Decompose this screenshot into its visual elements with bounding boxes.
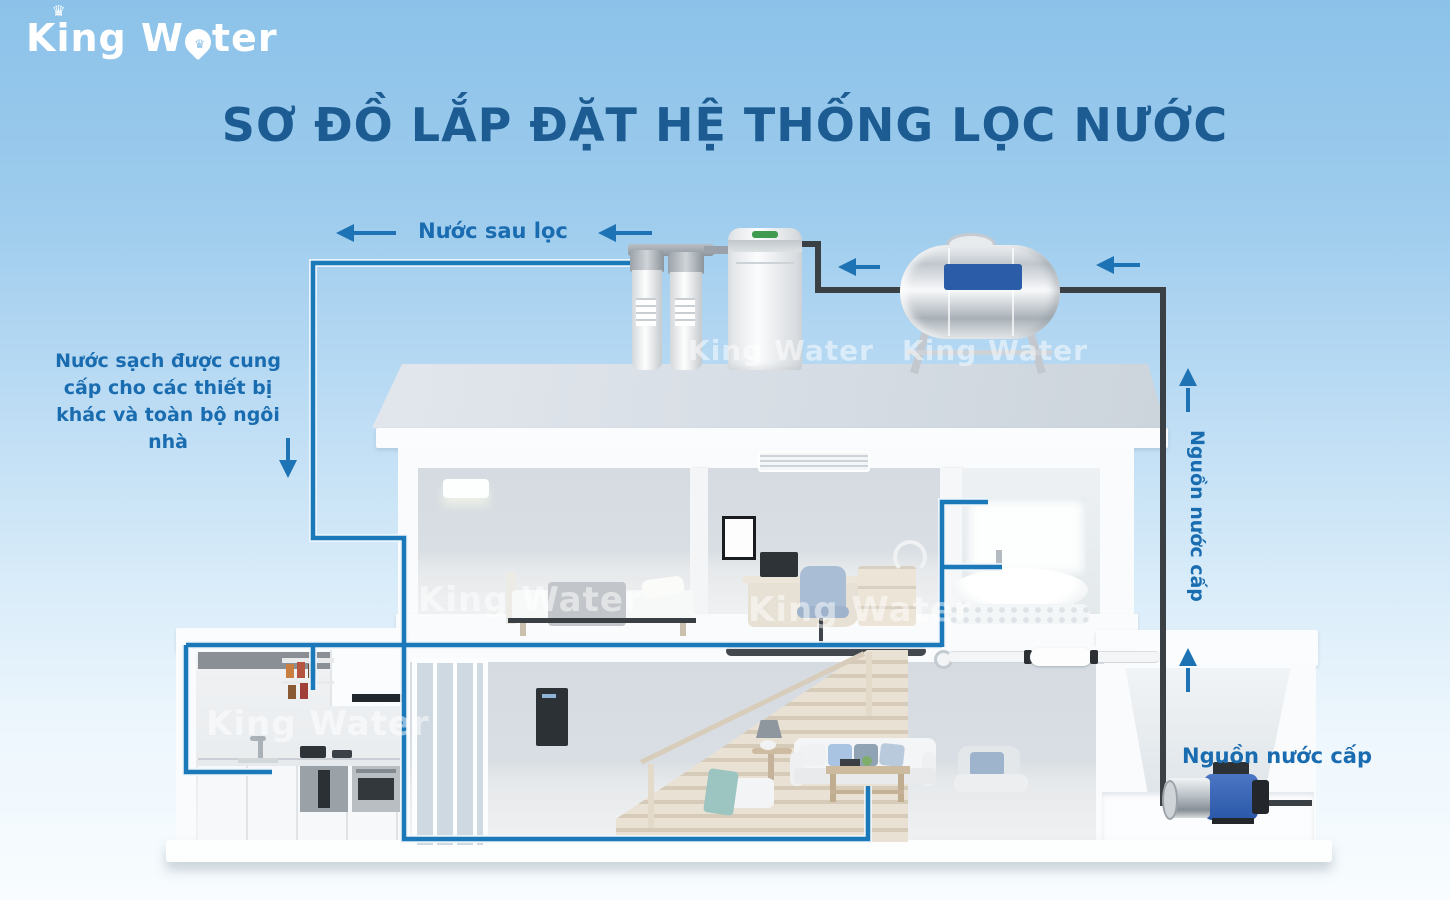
- page-title: SƠ ĐỒ LẮP ĐẶT HỆ THỐNG LỌC NƯỚC: [0, 98, 1450, 152]
- clean-water-pipe: [186, 263, 1002, 839]
- logo-text-left: King W: [26, 16, 184, 60]
- tank-seam: [1012, 248, 1014, 336]
- label-supply-pump: Nguồn nước cấp: [1182, 744, 1382, 768]
- infographic-canvas: ♛King W♛ter SƠ ĐỒ LẮP ĐẶT HỆ THỐNG LỌC N…: [0, 0, 1450, 900]
- prefilter-cap: [668, 252, 704, 274]
- supply-water-pipe: [790, 244, 1312, 803]
- prefilter-label: [636, 298, 656, 326]
- prefilter-label: [675, 298, 695, 326]
- label-clean-water-note: Nước sạch được cung cấp cho các thiết bị…: [36, 348, 300, 456]
- arrow-left-icon: [838, 258, 880, 276]
- arrow-up-icon: [1179, 368, 1197, 412]
- label-filtered-water: Nước sau lọc: [398, 219, 588, 243]
- arrow-left-icon: [598, 224, 652, 242]
- prefilter-cap: [630, 250, 664, 272]
- tank-seam: [948, 248, 950, 336]
- pump-front-ring: [1162, 780, 1178, 820]
- pump-body: [1204, 774, 1258, 820]
- tank-stand-bar: [906, 350, 1052, 355]
- arrow-left-icon: [336, 224, 396, 242]
- logo-text-right: ter: [212, 16, 278, 60]
- tank-label-panel: [944, 264, 1022, 290]
- arrow-left-icon: [1096, 256, 1140, 274]
- label-supply-vertical: Nguồn nước cấp: [1182, 430, 1208, 602]
- crown-icon: ♛: [194, 37, 206, 51]
- tank-body: [900, 245, 1060, 339]
- water-drop-icon: ♛: [179, 24, 216, 61]
- softener-logo: [752, 231, 778, 238]
- softener-top-band: [728, 240, 802, 252]
- crown-icon: ♛: [52, 2, 66, 20]
- pump-foot: [1212, 818, 1254, 824]
- arrow-up-icon: [1179, 648, 1197, 692]
- brand-logo: ♛King W♛ter: [26, 16, 278, 60]
- pump-rear-cap: [1252, 780, 1269, 814]
- softener-lid-line: [736, 262, 794, 264]
